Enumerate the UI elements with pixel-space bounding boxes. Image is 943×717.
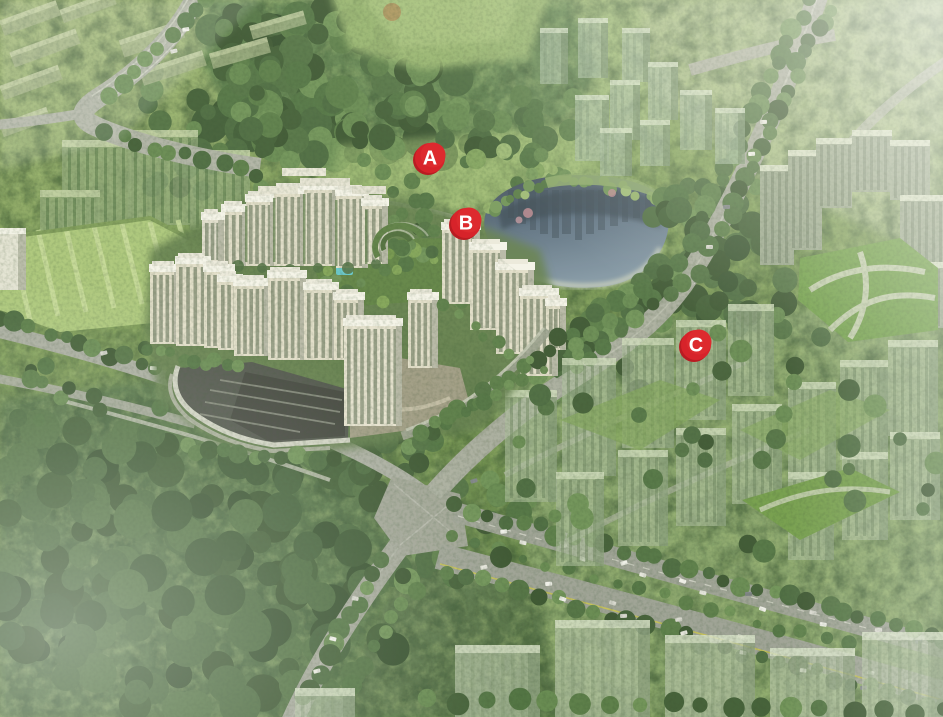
- svg-text:C: C: [689, 335, 703, 357]
- svg-text:A: A: [423, 148, 437, 170]
- svg-text:B: B: [459, 213, 473, 235]
